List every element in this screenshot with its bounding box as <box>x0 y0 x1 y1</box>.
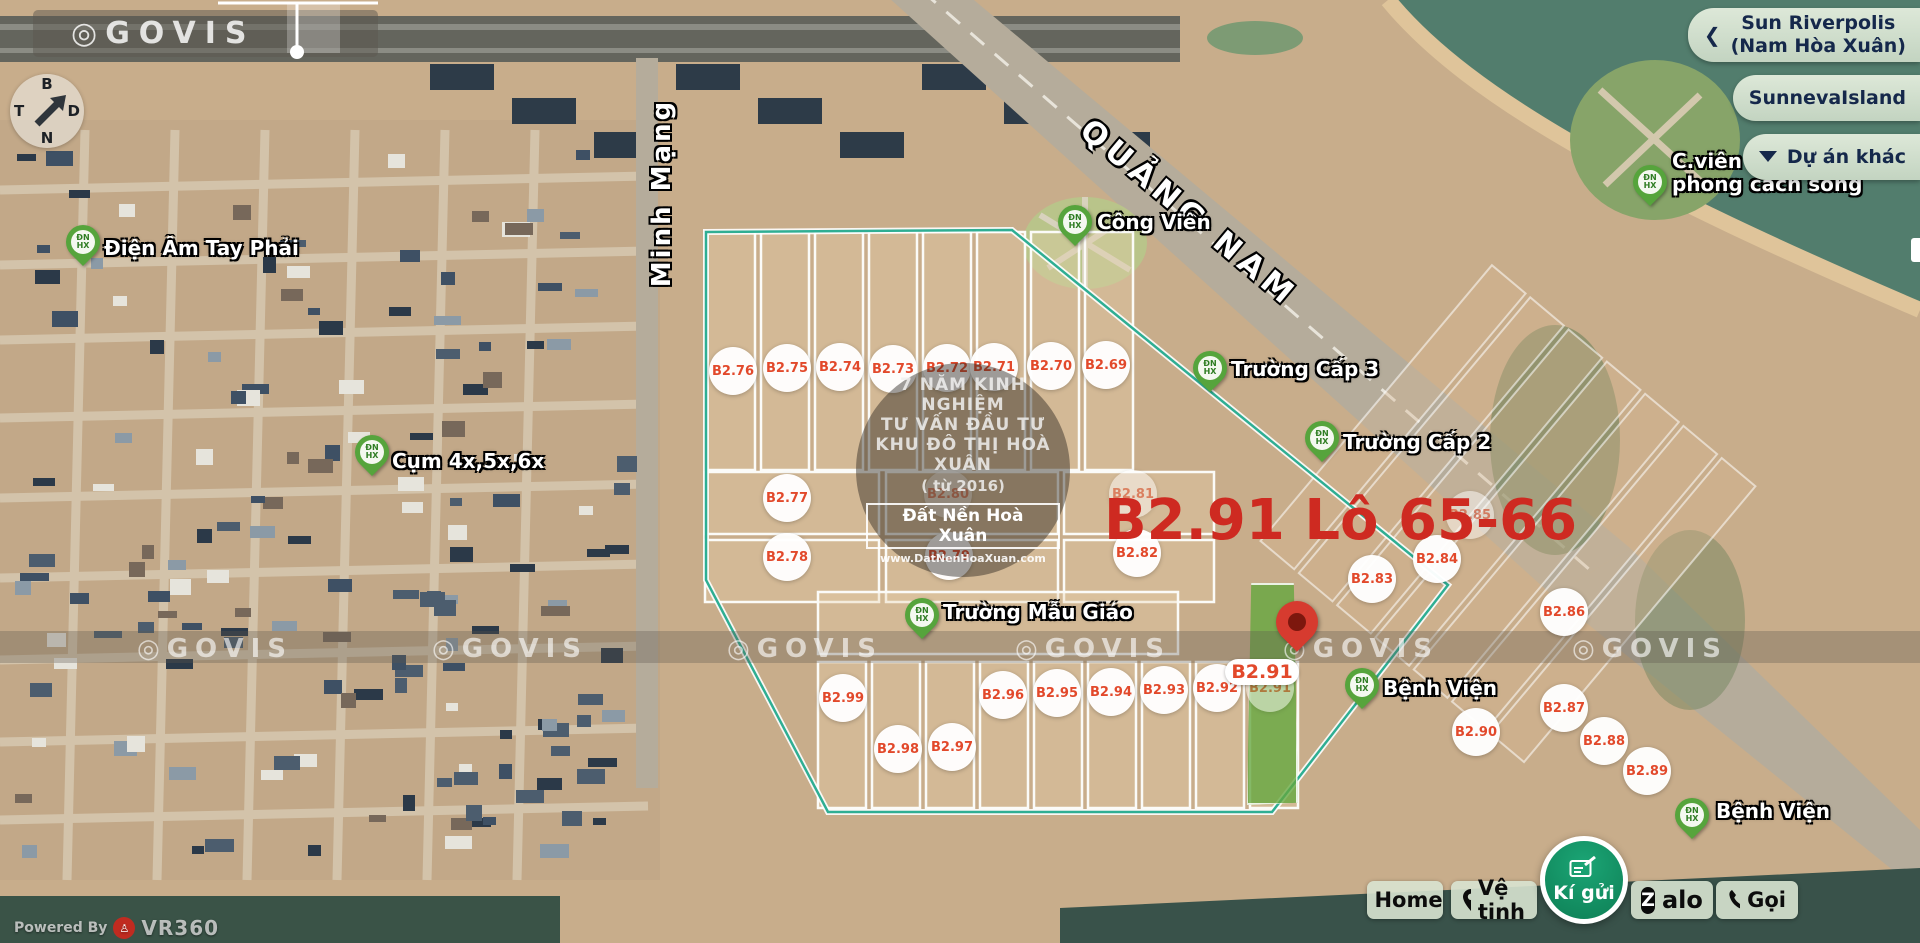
phone-icon <box>1728 889 1740 911</box>
poi-pin-icon[interactable]: ĐN HX <box>1057 204 1093 252</box>
watermark-tile: ◎GOVIS <box>432 634 588 664</box>
project-dropdown-other[interactable]: Dự án khác <box>1743 134 1920 180</box>
compass-west-label: T <box>14 102 24 120</box>
agency-website: www.DatNenHoaXuan.com <box>880 552 1046 565</box>
lot-badge-B2.75[interactable]: B2.75 <box>763 344 811 392</box>
compass-north-label: B <box>41 75 52 93</box>
lot-badge-B2.97[interactable]: B2.97 <box>928 723 976 771</box>
poi-pin-icon[interactable]: ĐN HX <box>904 597 940 645</box>
poi-pin-icon[interactable]: ĐN HX <box>1632 164 1668 212</box>
watermark-tile: ◎GOVIS <box>727 634 883 664</box>
poi-label: Trường Cấp 3 <box>1231 358 1379 381</box>
poi-pin-icon[interactable]: ĐN HX <box>354 434 390 482</box>
lot-badge-B2.77[interactable]: B2.77 <box>763 474 811 522</box>
agency-name: Đất Nền Hoà Xuân <box>866 503 1060 549</box>
lot-badge-B2.90[interactable]: B2.90 <box>1452 708 1500 756</box>
agency-watermark-circle: 7 NĂM KINH NGHIỆM TƯ VẤN ĐẦU TƯ KHU ĐÔ T… <box>856 363 1070 577</box>
watermark-tile: ◎GOVIS <box>1015 634 1171 664</box>
lot-badge-B2.93[interactable]: B2.93 <box>1140 666 1188 714</box>
selected-lot-tag[interactable]: B2.91 <box>1225 659 1299 685</box>
compass-south-label: N <box>41 129 54 147</box>
project-button-sun-riverpolis[interactable]: ❮ Sun Riverpolis (Nam Hòa Xuân) <box>1688 8 1920 62</box>
zalo-button[interactable]: Zalo <box>1631 881 1713 919</box>
poi-pin-icon[interactable]: ĐN HX <box>1674 797 1710 845</box>
location-pin-icon <box>1463 889 1471 911</box>
lot-badge-B2.83[interactable]: B2.83 <box>1348 555 1396 603</box>
poi-pin-icon[interactable]: ĐN HX <box>1192 350 1228 398</box>
right-edge-tab[interactable] <box>1911 238 1920 262</box>
poi-label: Điện Âm Tay Phải <box>104 237 299 260</box>
vr360-logo: ♙ <box>113 917 135 939</box>
lot-badge-B2.88[interactable]: B2.88 <box>1580 717 1628 765</box>
chevron-left-icon: ❮ <box>1704 23 1721 47</box>
street-label-minh-mang: Minh Mạng <box>647 99 677 287</box>
poi-label: Cụm 4x,5x,6x <box>392 450 544 473</box>
satellite-view-button[interactable]: Vệ tinh <box>1451 881 1537 919</box>
poi-label: Trường Cấp 2 <box>1343 431 1491 454</box>
note-pencil-icon <box>1569 856 1599 880</box>
lot-badge-B2.76[interactable]: B2.76 <box>709 347 757 395</box>
map-viewport[interactable]: ◎GOVIS◎GOVIS◎GOVIS◎GOVIS◎GOVIS◎GOVIS ◎GO… <box>0 0 1920 943</box>
lot-badge-B2.95[interactable]: B2.95 <box>1033 669 1081 717</box>
compass-east-label: D <box>68 102 80 120</box>
lot-badge-B2.94[interactable]: B2.94 <box>1087 668 1135 716</box>
poi-pin-icon[interactable]: ĐN HX <box>1344 667 1380 715</box>
selection-leader-line <box>0 0 420 80</box>
poi-pin-icon[interactable]: ĐN HX <box>1304 420 1340 468</box>
selected-lot-pin[interactable] <box>1274 599 1320 657</box>
lot-badge-B2.87[interactable]: B2.87 <box>1540 684 1588 732</box>
watermark-tile: ◎GOVIS <box>137 634 293 664</box>
chevron-down-icon <box>1759 151 1777 162</box>
zalo-icon: Z <box>1641 887 1655 914</box>
watermark-tile: ◎GOVIS <box>1572 634 1728 664</box>
selected-lot-headline: B2.91 Lô 65-66 <box>1104 488 1577 553</box>
lot-badge-B2.98[interactable]: B2.98 <box>874 725 922 773</box>
compass[interactable]: B D N T <box>10 74 84 148</box>
lot-badge-B2.78[interactable]: B2.78 <box>763 533 811 581</box>
lot-badge-B2.69[interactable]: B2.69 <box>1082 341 1130 389</box>
poi-label: Công Viên <box>1097 211 1211 234</box>
poi-label: Bệnh Viện <box>1383 677 1497 700</box>
project-button-sunneva-island[interactable]: SunnevaIsland <box>1733 75 1920 121</box>
lot-badge-B2.89[interactable]: B2.89 <box>1623 747 1671 795</box>
poi-label: Bệnh Viện <box>1716 800 1830 823</box>
call-button[interactable]: Gọi <box>1716 881 1798 919</box>
lot-badge-B2.74[interactable]: B2.74 <box>816 343 864 391</box>
lot-badge-B2.99[interactable]: B2.99 <box>819 674 867 722</box>
poi-label: Trường Mẫu Giáo <box>943 601 1133 624</box>
lot-badge-B2.96[interactable]: B2.96 <box>979 671 1027 719</box>
home-button[interactable]: Home <box>1367 881 1443 919</box>
consign-button[interactable]: Kí gửi <box>1540 836 1628 924</box>
powered-by-credit: Powered By ♙ VR360 <box>14 916 219 940</box>
poi-pin-icon[interactable]: ĐN HX <box>65 224 101 272</box>
lot-badge-B2.86[interactable]: B2.86 <box>1540 588 1588 636</box>
